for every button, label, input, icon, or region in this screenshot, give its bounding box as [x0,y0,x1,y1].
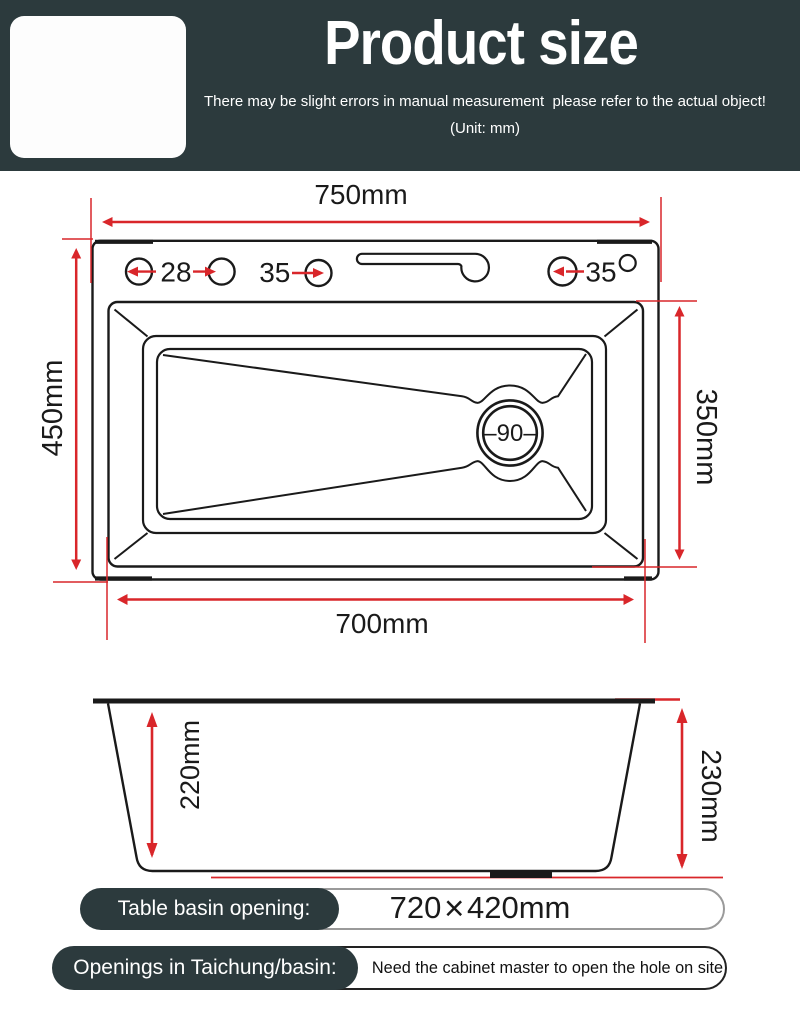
svg-text:230mm: 230mm [696,749,727,842]
svg-text:220mm: 220mm [175,720,205,810]
svg-text:–90–: –90– [483,420,537,447]
svg-text:750mm: 750mm [314,179,407,210]
svg-text:35: 35 [585,257,616,288]
svg-text:35: 35 [259,257,290,288]
svg-text:700mm: 700mm [335,608,428,639]
svg-text:450mm: 450mm [37,360,69,457]
svg-text:350mm: 350mm [690,389,722,486]
svg-text:28: 28 [160,257,191,288]
